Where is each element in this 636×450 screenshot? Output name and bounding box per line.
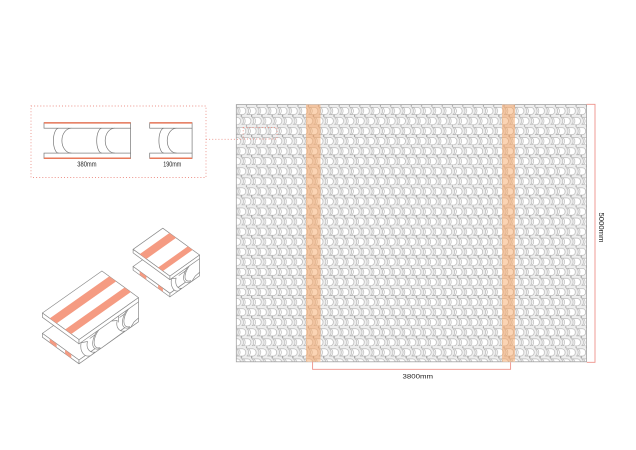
svg-text:190mm: 190mm bbox=[163, 162, 181, 169]
svg-text:380mm: 380mm bbox=[77, 162, 96, 169]
svg-text:3800mm: 3800mm bbox=[403, 374, 434, 381]
svg-text:5000mm: 5000mm bbox=[597, 213, 604, 243]
